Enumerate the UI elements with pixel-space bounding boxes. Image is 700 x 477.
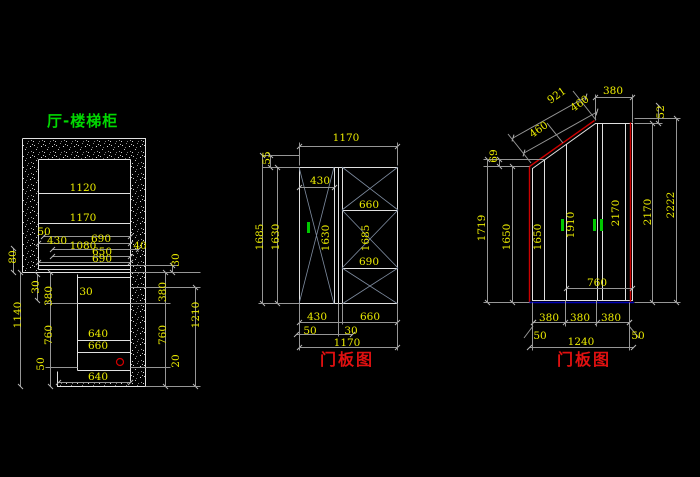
dim-label: 380: [570, 313, 590, 324]
door1-handle: [307, 222, 310, 233]
dim-label: 760: [587, 278, 607, 289]
dim-label: 690: [359, 257, 379, 268]
dim-label: 1685: [361, 225, 372, 252]
dim-label: 430: [307, 312, 327, 323]
dim-label: 1140: [13, 302, 24, 329]
dim-label: 2170: [643, 199, 654, 226]
dim-label: 1685: [255, 224, 266, 251]
dim-label: 640: [88, 329, 108, 340]
dim-label: 640: [88, 372, 108, 383]
dim-label: 1170: [333, 133, 360, 144]
dim-label: 380: [158, 282, 169, 302]
dim-label: 1120: [70, 183, 97, 194]
door2-caption: 门板图: [557, 346, 611, 370]
dim-label: 1630: [321, 225, 332, 252]
dim-label: 430: [310, 176, 330, 187]
section-detail-circle: [117, 359, 124, 366]
dim-label: 760: [158, 325, 169, 345]
dim-label: 380: [601, 313, 621, 324]
dim-label: 40: [133, 241, 146, 252]
dim-label: 660: [360, 312, 380, 323]
cad-drawing-canvas: 厅-楼梯柜 1120117050430690108040650690803038…: [0, 0, 700, 477]
dim-label: 30: [79, 287, 92, 298]
dim-label: 30: [344, 326, 357, 337]
dim-label: 69: [489, 149, 500, 162]
dim-label: 760: [44, 325, 55, 345]
dim-label: 660: [88, 341, 108, 352]
dim-label: 55: [262, 151, 273, 164]
dim-label: 1210: [191, 302, 202, 329]
dim-label: 1719: [477, 215, 488, 242]
dim-label: 52: [656, 105, 667, 118]
dim-label: 80: [8, 250, 19, 263]
dim-label: 380: [603, 86, 623, 97]
dim-label: 1170: [70, 213, 97, 224]
dim-label: 1650: [533, 224, 544, 251]
dim-label: 1650: [502, 224, 513, 251]
dim-label: 20: [171, 354, 182, 367]
dim-label: 690: [92, 254, 112, 265]
dim-label: 2222: [666, 192, 677, 219]
dim-label: 1630: [271, 224, 282, 251]
dim-label: 430: [47, 236, 67, 247]
dim-label: 380: [44, 286, 55, 306]
dim-label: 1910: [566, 212, 577, 239]
dim-label: 50: [631, 331, 644, 342]
dim-label: 2170: [611, 200, 622, 227]
dim-label: 50: [533, 331, 546, 342]
dim-label: 660: [359, 200, 379, 211]
dim-label: 30: [171, 253, 182, 266]
drawing-title: 厅-楼梯柜: [47, 110, 118, 131]
dim-label: 50: [303, 326, 316, 337]
dim-label: 50: [36, 357, 47, 370]
door1-caption: 门板图: [320, 346, 374, 370]
dim-label: 380: [539, 313, 559, 324]
dim-label: 30: [31, 280, 42, 293]
